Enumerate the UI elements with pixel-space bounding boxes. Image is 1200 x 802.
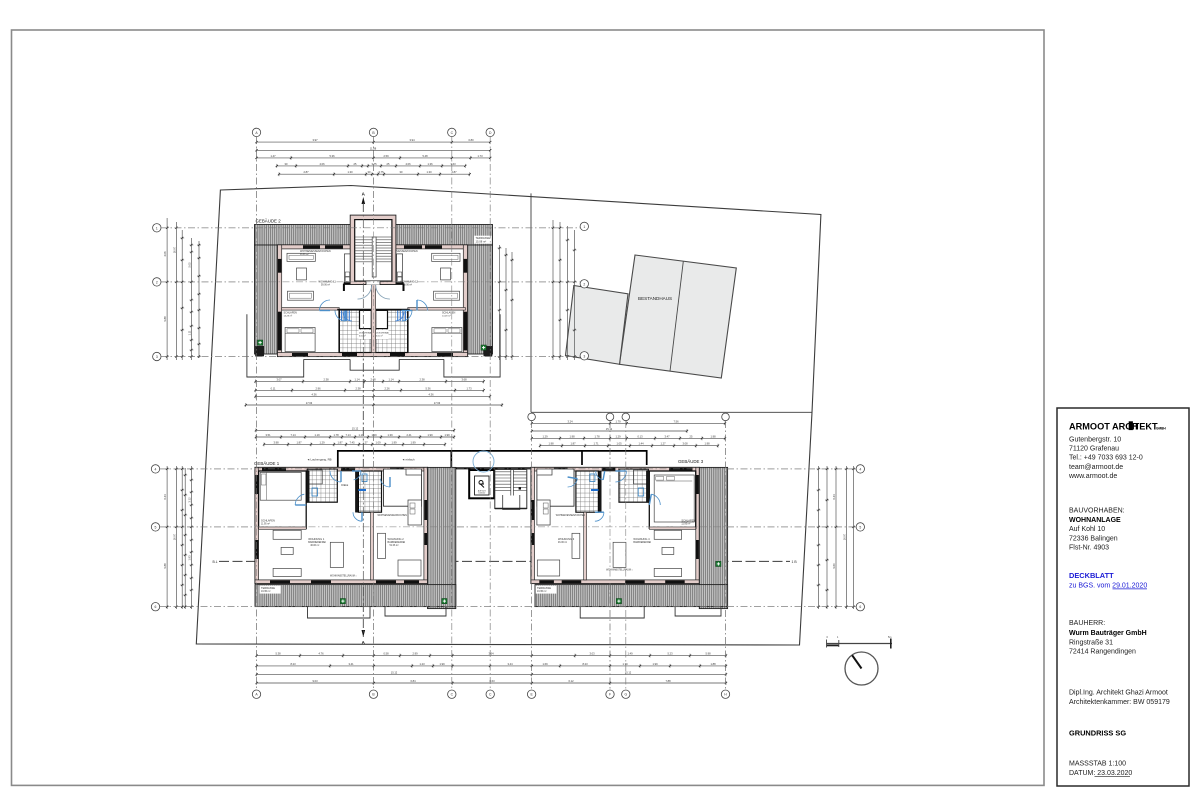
- svg-text:1.14: 1.14: [354, 377, 360, 381]
- svg-text:3.68: 3.68: [461, 377, 467, 381]
- svg-text:TEKT: TEKT: [1134, 422, 1158, 432]
- svg-text:16.97: 16.97: [172, 246, 176, 253]
- svg-text:1.30: 1.30: [347, 170, 353, 174]
- svg-text:1.87: 1.87: [337, 440, 343, 444]
- svg-text:1.87: 1.87: [570, 442, 576, 446]
- svg-text:www.armoot.de: www.armoot.de: [1068, 473, 1117, 480]
- svg-text:1.99: 1.99: [410, 440, 416, 444]
- svg-text:71120 Grafenau: 71120 Grafenau: [1069, 446, 1119, 453]
- svg-text:WOHNUNG 11: WOHNUNG 11: [318, 280, 336, 284]
- svg-text:7.14: 7.14: [345, 433, 351, 437]
- svg-text:2.59: 2.59: [383, 154, 389, 158]
- svg-text:16.95 m²: 16.95 m²: [537, 590, 547, 593]
- svg-text:BESTANDHAUS: BESTANDHAUS: [638, 296, 672, 301]
- svg-text:◄ Laubengang, RB: ◄ Laubengang, RB: [307, 457, 332, 461]
- svg-text:1.29: 1.29: [542, 434, 548, 438]
- svg-text:WOHNUNG 3: WOHNUNG 3: [558, 537, 575, 541]
- svg-text:1.78: 1.78: [333, 433, 339, 437]
- svg-text:11.95 m²: 11.95 m²: [261, 523, 270, 526]
- svg-text:1.29: 1.29: [371, 433, 377, 437]
- svg-text:WOHNANLAGE: WOHNANLAGE: [1069, 517, 1121, 524]
- svg-text:1.87: 1.87: [296, 440, 302, 444]
- svg-text:zu BGS. vom 29.01.2020: zu BGS. vom 29.01.2020: [1069, 583, 1147, 590]
- svg-text:1 B: 1 B: [792, 560, 798, 564]
- svg-text:1.39: 1.39: [387, 433, 393, 437]
- svg-text:1.44: 1.44: [638, 442, 644, 446]
- svg-text:16.97: 16.97: [843, 533, 847, 540]
- svg-text:6.00 m²: 6.00 m²: [359, 334, 366, 337]
- svg-text:2: 2: [583, 282, 585, 286]
- svg-text:1.30: 1.30: [426, 170, 432, 174]
- svg-text:1.78: 1.78: [594, 434, 600, 438]
- svg-text:3.03: 3.03: [589, 652, 595, 656]
- svg-text:100/140: 100/140: [478, 493, 485, 495]
- svg-text:MASSSTAB 1:100: MASSSTAB 1:100: [1069, 761, 1126, 768]
- svg-text:5.38: 5.38: [275, 652, 281, 656]
- svg-text:15.12: 15.12: [606, 427, 613, 431]
- svg-text:2.87: 2.87: [451, 170, 457, 174]
- svg-text:GMBH: GMBH: [1156, 427, 1166, 431]
- svg-text:1.99: 1.99: [427, 433, 433, 437]
- svg-text:5.05: 5.05: [187, 262, 191, 268]
- svg-text:1.99: 1.99: [444, 433, 450, 437]
- svg-text:1.99: 1.99: [391, 440, 397, 444]
- svg-text:5.36: 5.36: [329, 154, 335, 158]
- svg-text:51.06 m²: 51.06 m²: [390, 544, 399, 547]
- svg-text:DUSCHE/BAD: DUSCHE/BAD: [359, 332, 373, 335]
- svg-text:Ringstraße 31: Ringstraße 31: [1069, 639, 1113, 646]
- svg-text:6: 6: [859, 605, 861, 609]
- svg-text:1.27: 1.27: [660, 442, 666, 446]
- svg-text:15.08 m²: 15.08 m²: [476, 239, 487, 243]
- svg-text:2.99: 2.99: [412, 652, 418, 656]
- svg-text:3.24: 3.24: [567, 419, 573, 423]
- svg-text:1.69: 1.69: [542, 662, 548, 666]
- svg-text:3.44: 3.44: [507, 662, 513, 666]
- svg-text:9.60: 9.60: [832, 563, 836, 569]
- svg-text:Architektenkammer: BW 059179: Architektenkammer: BW 059179: [1069, 699, 1170, 706]
- svg-text:2.38: 2.38: [355, 386, 361, 390]
- svg-text:1.99: 1.99: [652, 662, 658, 666]
- svg-text:16.97: 16.97: [172, 533, 176, 540]
- svg-text:3.07: 3.07: [276, 377, 282, 381]
- svg-text:5: 5: [155, 525, 157, 529]
- svg-text:4.76: 4.76: [318, 652, 324, 656]
- svg-text:0.11: 0.11: [271, 386, 276, 390]
- svg-text:59.06 m²: 59.06 m²: [321, 284, 330, 287]
- svg-text:3.97: 3.97: [312, 138, 318, 142]
- svg-text:SCHLAFEN: SCHLAFEN: [261, 519, 275, 523]
- svg-text:5.36: 5.36: [425, 386, 431, 390]
- svg-text:2.38: 2.38: [323, 377, 329, 381]
- svg-text:14.28 m²: 14.28 m²: [442, 315, 451, 318]
- svg-text:3.63: 3.63: [450, 162, 456, 166]
- svg-text:B.L: B.L: [213, 560, 218, 564]
- svg-text:0.80: 0.80: [468, 138, 474, 142]
- svg-text:5.23: 5.23: [667, 652, 673, 656]
- svg-text:5m: 5m: [888, 636, 891, 639]
- svg-text:Gutenbergstr. 10: Gutenbergstr. 10: [1069, 437, 1121, 444]
- svg-text:6.00 m²: 6.00 m²: [376, 334, 383, 337]
- svg-text:7.56: 7.56: [673, 419, 679, 423]
- svg-text:GRUNDRISS SG: GRUNDRISS SG: [1069, 728, 1126, 737]
- svg-text:BAUVORHABEN:: BAUVORHABEN:: [1069, 508, 1125, 515]
- svg-text:5.48: 5.48: [422, 154, 428, 158]
- svg-text:5.98: 5.98: [705, 652, 711, 656]
- svg-text:team@armoot.de: team@armoot.de: [1069, 464, 1123, 471]
- svg-text:2.96: 2.96: [315, 386, 321, 390]
- svg-text:0.58: 0.58: [383, 652, 389, 656]
- svg-text:1.29: 1.29: [615, 434, 621, 438]
- svg-text:46.06 m²: 46.06 m²: [310, 544, 319, 547]
- svg-text:8.23: 8.23: [582, 662, 588, 666]
- svg-text:46.06 m²: 46.06 m²: [558, 541, 567, 544]
- svg-text:SCHLAFEN: SCHLAFEN: [284, 312, 298, 315]
- svg-text:1: 1: [583, 225, 585, 229]
- svg-text:1.73: 1.73: [466, 386, 472, 390]
- svg-text:1.09: 1.09: [375, 440, 381, 444]
- svg-text:1.98: 1.98: [548, 442, 554, 446]
- svg-text:17.63: 17.63: [306, 401, 313, 405]
- svg-text:3.08: 3.08: [682, 442, 688, 446]
- svg-text:1.71: 1.71: [593, 442, 599, 446]
- svg-text:GEBÄUDE 1: GEBÄUDE 1: [254, 461, 280, 466]
- svg-text:3.75: 3.75: [371, 162, 377, 166]
- svg-text:G: G: [624, 693, 627, 697]
- svg-text:WOHNEN/ESSEN/KOCHEN: WOHNEN/ESSEN/KOCHEN: [378, 515, 408, 517]
- svg-text:BARRIEREFREI: BARRIEREFREI: [633, 541, 651, 544]
- svg-text:1.98: 1.98: [710, 434, 716, 438]
- svg-text:◄ einfach: ◄ einfach: [402, 457, 415, 461]
- svg-text:2: 2: [156, 280, 158, 284]
- svg-text:1: 1: [156, 226, 158, 230]
- svg-text:4: 4: [859, 467, 861, 471]
- svg-text:4.06: 4.06: [405, 162, 411, 166]
- svg-text:17.63: 17.63: [434, 401, 441, 405]
- svg-text:WOHNEN/ESSEN/KOCHEN: WOHNEN/ESSEN/KOCHEN: [300, 250, 331, 253]
- svg-text:GEBÄUDE 3: GEBÄUDE 3: [678, 459, 704, 464]
- svg-text:1.99: 1.99: [439, 662, 445, 666]
- svg-text:15.12: 15.12: [391, 670, 398, 674]
- svg-text:9.03: 9.03: [312, 679, 318, 683]
- svg-text:2.38: 2.38: [419, 377, 425, 381]
- svg-text:1.29: 1.29: [319, 440, 325, 444]
- svg-text:Auf Kohl 10: Auf Kohl 10: [1069, 526, 1105, 533]
- svg-text:6.44: 6.44: [832, 494, 836, 500]
- svg-text:1.11: 1.11: [187, 330, 191, 335]
- svg-text:1.36: 1.36: [427, 162, 433, 166]
- svg-text:14.28 m²: 14.28 m²: [284, 315, 293, 318]
- svg-text:DUSCHE/BAD: DUSCHE/BAD: [376, 332, 390, 335]
- svg-text:3: 3: [583, 354, 585, 358]
- svg-text:1.23: 1.23: [419, 662, 425, 666]
- svg-text:0.13: 0.13: [637, 434, 643, 438]
- svg-text:3.98: 3.98: [273, 440, 279, 444]
- svg-text:1.98: 1.98: [569, 434, 575, 438]
- svg-text:6.84: 6.84: [410, 679, 416, 683]
- svg-text:4.36: 4.36: [311, 392, 317, 396]
- svg-text:SCHLAFEN: SCHLAFEN: [442, 312, 456, 315]
- svg-text:7.45: 7.45: [349, 440, 355, 444]
- svg-text:1.79: 1.79: [615, 419, 621, 423]
- svg-text:ARMOOT ARCH: ARMOOT ARCH: [1069, 422, 1139, 432]
- svg-text:1.98: 1.98: [704, 442, 710, 446]
- svg-text:72336 Balingen: 72336 Balingen: [1069, 535, 1118, 542]
- svg-text:3.94: 3.94: [409, 138, 415, 142]
- svg-text:9.88: 9.88: [163, 563, 167, 569]
- svg-text:1.79: 1.79: [622, 662, 628, 666]
- svg-text:6.12: 6.12: [568, 679, 574, 683]
- svg-text:3.12: 3.12: [187, 497, 191, 503]
- svg-text:1.88: 1.88: [710, 662, 716, 666]
- svg-text:3.75: 3.75: [378, 170, 384, 174]
- svg-text:1.49: 1.49: [627, 652, 633, 656]
- svg-text:4.06: 4.06: [319, 162, 325, 166]
- svg-text:3.41: 3.41: [348, 662, 354, 666]
- svg-text:9.88: 9.88: [163, 316, 167, 322]
- svg-text:DECKBLATT: DECKBLATT: [1069, 571, 1114, 580]
- svg-text:1.14: 1.14: [388, 377, 394, 381]
- svg-text:4.06: 4.06: [163, 251, 167, 257]
- svg-text:2.87: 2.87: [303, 170, 309, 174]
- svg-text:SCHLAFEN: SCHLAFEN: [681, 519, 695, 523]
- svg-text:72414 Rangendingen: 72414 Rangendingen: [1069, 649, 1136, 656]
- svg-text:7.14: 7.14: [290, 433, 296, 437]
- svg-text:11.95 m²: 11.95 m²: [681, 523, 690, 526]
- svg-text:BARRIEREFREI: BARRIEREFREI: [308, 541, 326, 544]
- svg-text:6: 6: [155, 605, 157, 609]
- svg-text:3.47: 3.47: [664, 434, 670, 438]
- svg-text:5: 5: [859, 525, 861, 529]
- svg-text:2.26: 2.26: [384, 386, 390, 390]
- svg-text:4.36: 4.36: [428, 392, 434, 396]
- svg-text:6.44: 6.44: [163, 494, 167, 500]
- svg-text:BAUHERR:: BAUHERR:: [1069, 620, 1105, 627]
- svg-text:1.05: 1.05: [616, 442, 622, 446]
- svg-text:2.41: 2.41: [406, 433, 412, 437]
- svg-text:1.73: 1.73: [477, 154, 483, 158]
- svg-text:3.51: 3.51: [265, 433, 271, 437]
- svg-text:F: F: [609, 693, 611, 697]
- svg-text:4: 4: [155, 467, 157, 471]
- svg-text:DIELE: DIELE: [341, 484, 348, 487]
- svg-text:GEBÄUDE 2: GEBÄUDE 2: [256, 219, 282, 224]
- svg-text:1.19: 1.19: [314, 433, 320, 437]
- svg-text:8.23: 8.23: [290, 662, 296, 666]
- svg-text:15.12: 15.12: [352, 426, 359, 430]
- svg-text:Flst-Nr. 4903: Flst-Nr. 4903: [1069, 545, 1109, 552]
- svg-text:16.95 m²: 16.95 m²: [261, 590, 271, 593]
- svg-text:WOHNEN/ESSEN/KOCHEN: WOHNEN/ESSEN/KOCHEN: [556, 515, 586, 517]
- svg-text:Wurm Bauträger GmbH: Wurm Bauträger GmbH: [1069, 630, 1147, 637]
- svg-text:Dipl.Ing. Architekt Ghazi Armo: Dipl.Ing. Architekt Ghazi Armoot: [1069, 690, 1168, 697]
- svg-text:3: 3: [156, 355, 158, 359]
- svg-text:1.93: 1.93: [187, 555, 191, 561]
- svg-text:35.95 m²: 35.95 m²: [300, 253, 309, 256]
- svg-text:Tel.: +49 7033 693 12-0: Tel.: +49 7033 693 12-0: [1069, 455, 1143, 462]
- svg-text:WOHN/ABSTELLRAUM ○: WOHN/ABSTELLRAUM ○: [330, 575, 357, 578]
- svg-text:3.64: 3.64: [488, 652, 494, 656]
- svg-text:BARRIEREFREI: BARRIEREFREI: [388, 541, 406, 544]
- svg-text:1.47: 1.47: [270, 154, 276, 158]
- svg-text:7.88: 7.88: [665, 679, 671, 683]
- svg-text:DATUM: 23.03.2020: DATUM: 23.03.2020: [1069, 770, 1132, 777]
